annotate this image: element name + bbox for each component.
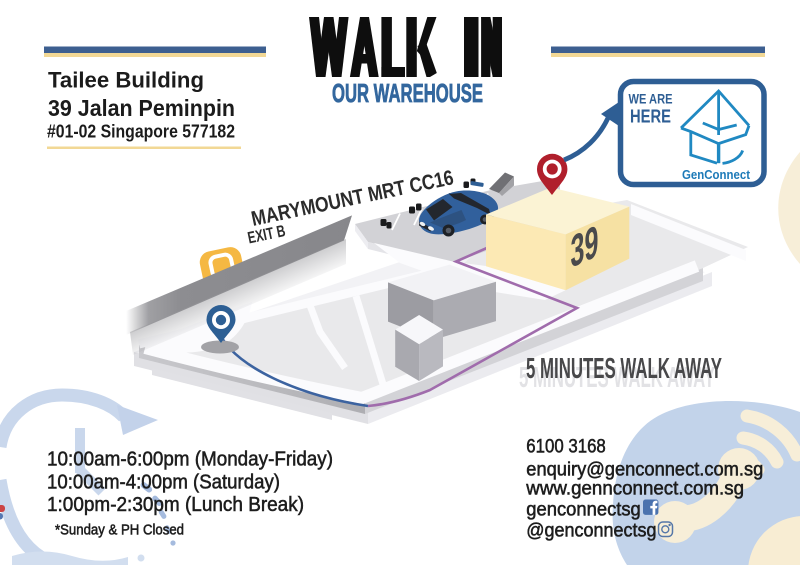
svg-text:GenConnect: GenConnect — [682, 168, 751, 182]
svg-text:HERE: HERE — [630, 106, 671, 127]
svg-text:*Sunday & PH Closed: *Sunday & PH Closed — [55, 521, 184, 538]
svg-text:@genconnectsg: @genconnectsg — [526, 520, 656, 542]
svg-text:10:00am-6:00pm (Monday-Friday): 10:00am-6:00pm (Monday-Friday) — [47, 448, 333, 471]
svg-text:www.gennconnect.com.sg: www.gennconnect.com.sg — [525, 478, 744, 500]
svg-text:1:00pm-2:30pm (Lunch Break): 1:00pm-2:30pm (Lunch Break) — [47, 493, 304, 516]
svg-text:Tailee Building: Tailee Building — [48, 68, 204, 93]
svg-text:39 Jalan Peminpin: 39 Jalan Peminpin — [48, 95, 235, 121]
svg-text:OUR WAREHOUSE: OUR WAREHOUSE — [332, 78, 483, 108]
svg-text:genconnectsg: genconnectsg — [526, 499, 641, 521]
svg-text:10:00am-4:00pm (Saturday): 10:00am-4:00pm (Saturday) — [47, 470, 280, 493]
svg-text:6100 3168: 6100 3168 — [526, 436, 606, 458]
svg-text:#01-02 Singapore 577182: #01-02 Singapore 577182 — [47, 122, 235, 142]
svg-text:5 MINUTES WALK AWAY: 5 MINUTES WALK AWAY — [526, 353, 722, 385]
svg-text:WE ARE: WE ARE — [629, 91, 673, 107]
